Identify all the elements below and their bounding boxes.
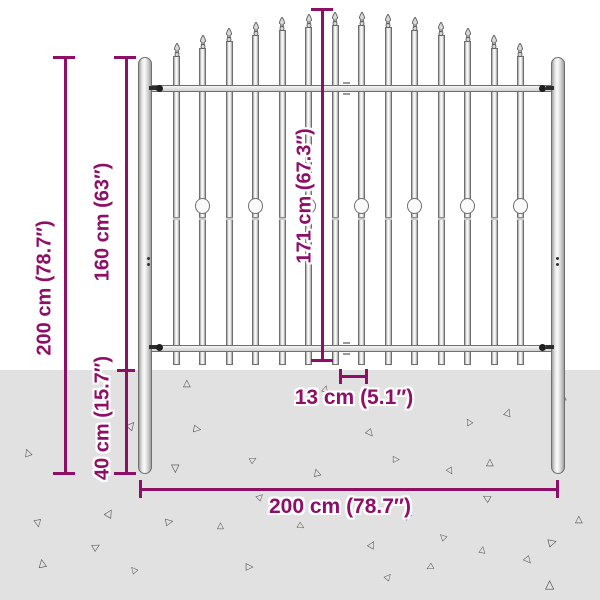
ground-debris-triangle-icon: △ [191, 424, 202, 433]
dim-line-total-width [140, 488, 558, 491]
bar-ornament-ring [407, 198, 422, 214]
post-screw-hole [556, 257, 559, 260]
ground-debris-triangle-icon: △ [424, 562, 435, 572]
bar-joint-notch [517, 217, 524, 220]
rail-joint-mark [343, 82, 350, 84]
label-total-height: 200 cm (78.7″) [34, 220, 57, 355]
spear-finial-icon [224, 28, 234, 43]
bar-joint-notch [491, 217, 498, 220]
rail-bracket [546, 345, 554, 349]
spear-finial-icon [436, 22, 446, 37]
label-bar-spacing: 13 cm (5.1″) [295, 386, 414, 410]
ground-debris-triangle-icon: △ [478, 544, 486, 554]
ground-debris-triangle-icon: △ [163, 517, 174, 526]
ground-debris-triangle-icon: △ [37, 557, 47, 569]
spear-finial-icon [198, 35, 208, 50]
rail-joint-mark [343, 353, 350, 355]
dim-line-panel-height [321, 10, 324, 361]
spear-finial-icon [172, 43, 182, 58]
dim-cap [339, 369, 342, 384]
ground-debris-triangle-icon: △ [364, 427, 376, 440]
bar-joint-notch [438, 217, 445, 220]
ground-debris-triangle-icon: △ [575, 515, 583, 525]
fence-dimension-diagram: △△△△△△△△△△△△△△△△△△△△△△△△△△△△△△△△△△△△ 200… [0, 0, 600, 600]
dim-cap [556, 480, 559, 498]
ground-debris-triangle-icon: △ [437, 531, 448, 542]
bar-ornament-ring [513, 198, 528, 214]
dim-line-bar-spacing [341, 375, 367, 378]
dim-cap [365, 369, 368, 384]
dim-cap [139, 480, 142, 498]
ground-debris-triangle-icon: △ [244, 563, 254, 571]
ground-debris-triangle-icon: △ [503, 407, 514, 419]
fence-bar-rod [491, 48, 498, 365]
bar-joint-notch [358, 217, 365, 220]
fence-bar-rod [279, 30, 286, 365]
dim-line-total-height [64, 57, 67, 474]
ground-debris-triangle-icon: △ [255, 491, 266, 502]
ground-debris-triangle-icon: △ [383, 571, 394, 582]
spear-finial-icon [251, 22, 261, 37]
bar-joint-notch [226, 217, 233, 220]
bar-joint-notch [385, 217, 392, 220]
rail-bracket-bolt [156, 344, 163, 351]
bar-joint-notch [199, 217, 206, 220]
ground-debris-triangle-icon: △ [296, 521, 307, 531]
bar-ornament-ring [354, 198, 369, 214]
ground-debris-triangle-icon: △ [23, 447, 34, 459]
rail-bracket-bolt [539, 344, 546, 351]
ground-debris-triangle-icon: △ [522, 554, 534, 567]
ground-debris-triangle-icon: △ [392, 456, 401, 463]
spear-finial-icon [304, 14, 314, 29]
spear-finial-icon [515, 43, 525, 58]
spear-finial-icon [330, 12, 340, 27]
spear-finial-icon [383, 14, 393, 29]
ground-debris-triangle-icon: △ [463, 416, 473, 427]
bar-joint-notch [252, 217, 259, 220]
dim-cap [114, 56, 136, 59]
dim-cap [114, 472, 136, 475]
top-rail [152, 85, 551, 92]
ground-debris-triangle-icon: △ [545, 578, 554, 590]
rail-bracket-bolt [539, 85, 546, 92]
ground-debris-triangle-icon: △ [366, 539, 378, 552]
bar-joint-notch [411, 217, 418, 220]
dim-cap [53, 56, 75, 59]
ground-debris-triangle-icon: △ [486, 458, 494, 468]
spear-finial-icon [357, 12, 367, 27]
ground-debris-triangle-icon: △ [312, 467, 322, 479]
left-post [138, 57, 152, 474]
bar-joint-notch [332, 217, 339, 220]
bottom-rail [152, 345, 551, 352]
label-panel-height: 171 cm (67.3″) [294, 128, 317, 263]
bar-ornament-ring [460, 198, 475, 214]
label-above-ground: 160 cm (63″) [92, 163, 115, 282]
bar-joint-notch [279, 217, 286, 220]
rail-joint-mark [343, 93, 350, 95]
ground-debris-triangle-icon: △ [128, 564, 139, 575]
post-screw-hole [147, 257, 150, 260]
bar-joint-notch [464, 217, 471, 220]
post-screw-hole [556, 263, 559, 266]
rail-joint-mark [343, 342, 350, 344]
fence-bar-rod [173, 56, 180, 365]
fence-bar-rod [332, 25, 339, 365]
fence-bar-rod [385, 27, 392, 365]
ground-debris-triangle-icon: △ [217, 521, 224, 530]
dim-cap [53, 472, 75, 475]
rail-bracket [546, 86, 554, 90]
spear-finial-icon [489, 35, 499, 50]
ground-debris-triangle-icon: △ [103, 507, 116, 521]
ground-debris-triangle-icon: △ [445, 466, 455, 477]
dim-cap [311, 359, 333, 362]
label-below-ground: 40 cm (15.7″) [92, 356, 115, 480]
bar-ornament-ring [195, 198, 210, 214]
spear-finial-icon [277, 17, 287, 32]
dim-line-above-below [125, 57, 128, 474]
post-screw-hole [147, 263, 150, 266]
ground-debris-triangle-icon: △ [546, 537, 559, 548]
ground-debris-triangle-icon: △ [481, 492, 494, 504]
rail-bracket-bolt [156, 85, 163, 92]
spear-finial-icon [463, 28, 473, 43]
spear-finial-icon [410, 17, 420, 32]
dim-cap-ground-tick [117, 369, 135, 372]
ground-debris-triangle-icon: △ [183, 379, 191, 389]
ground-debris-triangle-icon: △ [33, 517, 42, 528]
dim-cap [311, 8, 333, 11]
bar-ornament-ring [248, 198, 263, 214]
label-total-width: 200 cm (78.7″) [269, 495, 411, 519]
ground-debris-triangle-icon: △ [90, 541, 103, 553]
ground-debris-triangle-icon: △ [248, 454, 259, 464]
ground-debris-triangle-icon: △ [171, 463, 179, 474]
fence-bar-rod [358, 25, 365, 365]
bar-joint-notch [173, 217, 180, 220]
